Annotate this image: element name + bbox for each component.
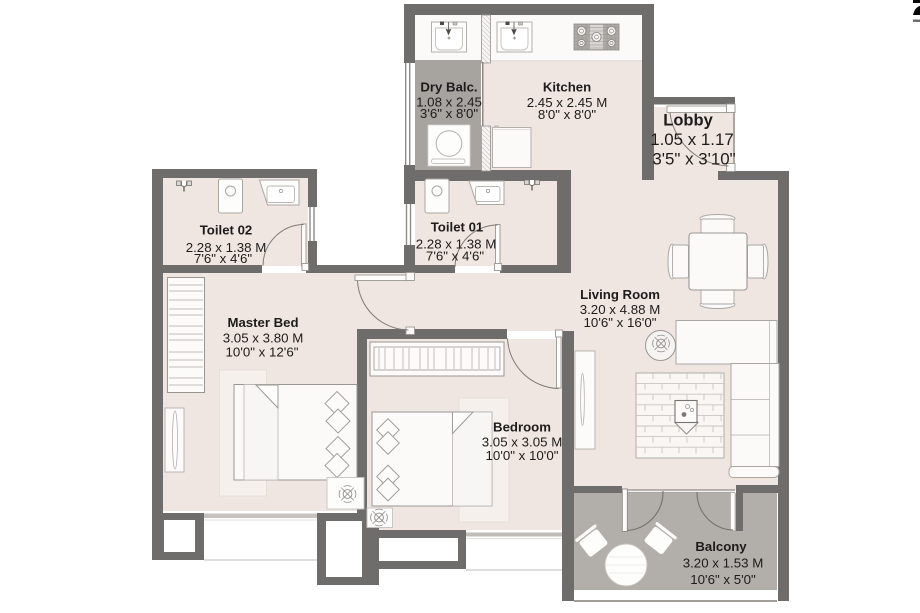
svg-text:Balcony: Balcony bbox=[695, 539, 747, 554]
svg-text:7'6" x 4'6": 7'6" x 4'6" bbox=[194, 251, 252, 266]
svg-text:10'0" x 12'6": 10'0" x 12'6" bbox=[226, 345, 299, 360]
svg-text:1.05 x 1.17: 1.05 x 1.17 bbox=[650, 130, 734, 149]
svg-text:Toilet 01: Toilet 01 bbox=[431, 220, 484, 235]
svg-text:7'6" x 4'6": 7'6" x 4'6" bbox=[426, 249, 484, 264]
svg-text:Dry Balc.: Dry Balc. bbox=[420, 80, 477, 95]
svg-text:Bedroom: Bedroom bbox=[493, 420, 551, 435]
svg-text:3.05 x 3.80 M: 3.05 x 3.80 M bbox=[223, 331, 304, 346]
svg-text:Kitchen: Kitchen bbox=[543, 80, 591, 95]
svg-text:10'6" x 16'0": 10'6" x 16'0" bbox=[584, 315, 657, 330]
svg-text:10'6" x 5'0": 10'6" x 5'0" bbox=[690, 572, 756, 587]
svg-text:3.20 x 1.53 M: 3.20 x 1.53 M bbox=[683, 556, 764, 571]
svg-text:Living Room: Living Room bbox=[580, 287, 660, 302]
svg-text:Master Bed: Master Bed bbox=[227, 315, 298, 330]
svg-text:8'0" x 8'0": 8'0" x 8'0" bbox=[538, 107, 596, 122]
svg-text:3'6" x 8'0": 3'6" x 8'0" bbox=[420, 106, 478, 121]
svg-text:Lobby: Lobby bbox=[663, 112, 713, 130]
svg-text:10'0" x 10'0": 10'0" x 10'0" bbox=[486, 448, 559, 463]
svg-text:3'5" x 3'10": 3'5" x 3'10" bbox=[652, 149, 735, 168]
svg-text:Toilet 02: Toilet 02 bbox=[200, 223, 253, 238]
